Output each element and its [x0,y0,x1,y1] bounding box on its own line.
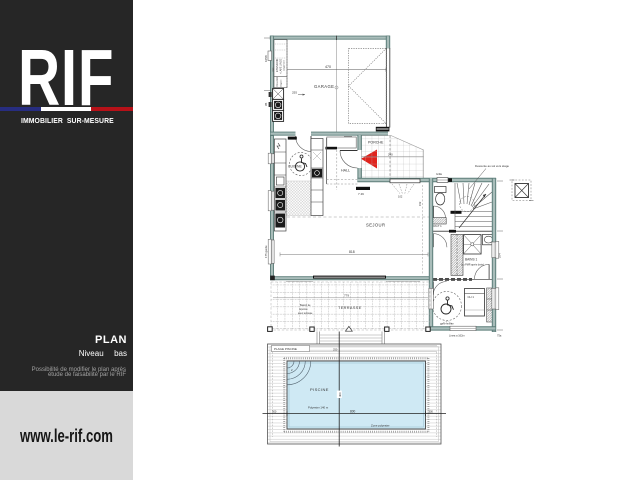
svg-text:porte-fenêtre: porte-fenêtre [440,323,454,326]
svg-text:RGT 1: RGT 1 [434,224,443,228]
svg-text:PORCHE: PORCHE [368,141,384,145]
svg-text:Descente au sol vers étage: Descente au sol vers étage [475,164,509,168]
svg-text:rangement: rangement [283,60,286,71]
svg-text:300: 300 [272,409,277,413]
svg-text:SEJOUR: SEJOUR [366,223,385,228]
svg-text:Polyester 140 m: Polyester 140 m [308,406,329,410]
svg-text:255: 255 [292,91,297,95]
svg-text:GARAGE: GARAGE [314,84,334,89]
svg-text:300: 300 [429,409,434,413]
svg-text:HALL: HALL [341,169,350,173]
svg-text:Grille: Grille [436,172,443,176]
svg-text:Linea a 162m: Linea a 162m [449,334,465,338]
svg-text:etagere: etagere [280,79,283,87]
svg-text:75a: 75a [497,334,502,338]
svg-text:779: 779 [344,293,349,297]
svg-text:240: 240 [388,152,393,156]
svg-text:PISCINE: PISCINE [310,387,329,392]
svg-text:PLAGE PISCINE: PLAGE PISCINE [274,347,297,351]
svg-text:152: 152 [418,201,422,206]
svg-text:175 garde: 175 garde [264,245,268,258]
svg-text:7 49: 7 49 [358,192,364,196]
svg-text:1058: 1058 [264,55,268,62]
svg-text:TERRASSE: TERRASSE [338,306,362,310]
svg-text:Zone polyester: Zone polyester [371,424,390,428]
svg-text:avec terrasse: avec terrasse [298,312,313,315]
svg-text:(ou PMR après devis): (ou PMR après devis) [461,264,484,267]
svg-text:Bassin de: Bassin de [300,304,311,307]
svg-text:254: 254 [498,253,502,258]
svg-text:ETENDOIR: ETENDOIR [275,58,279,72]
svg-text:818: 818 [349,250,355,254]
svg-text:400: 400 [338,392,342,397]
svg-text:470: 470 [325,65,331,69]
svg-text:250: 250 [333,348,338,352]
svg-text:95: 95 [264,102,268,106]
svg-text:102: 102 [398,194,403,198]
svg-text:BAINS 1: BAINS 1 [465,258,477,262]
svg-text:CELLIER: CELLIER [276,76,279,86]
svg-text:+LAVE LINGE: +LAVE LINGE [279,58,282,74]
svg-text:800: 800 [350,409,356,413]
svg-text:réponse: réponse [299,308,308,311]
svg-text:CH 1: CH 1 [468,295,475,299]
